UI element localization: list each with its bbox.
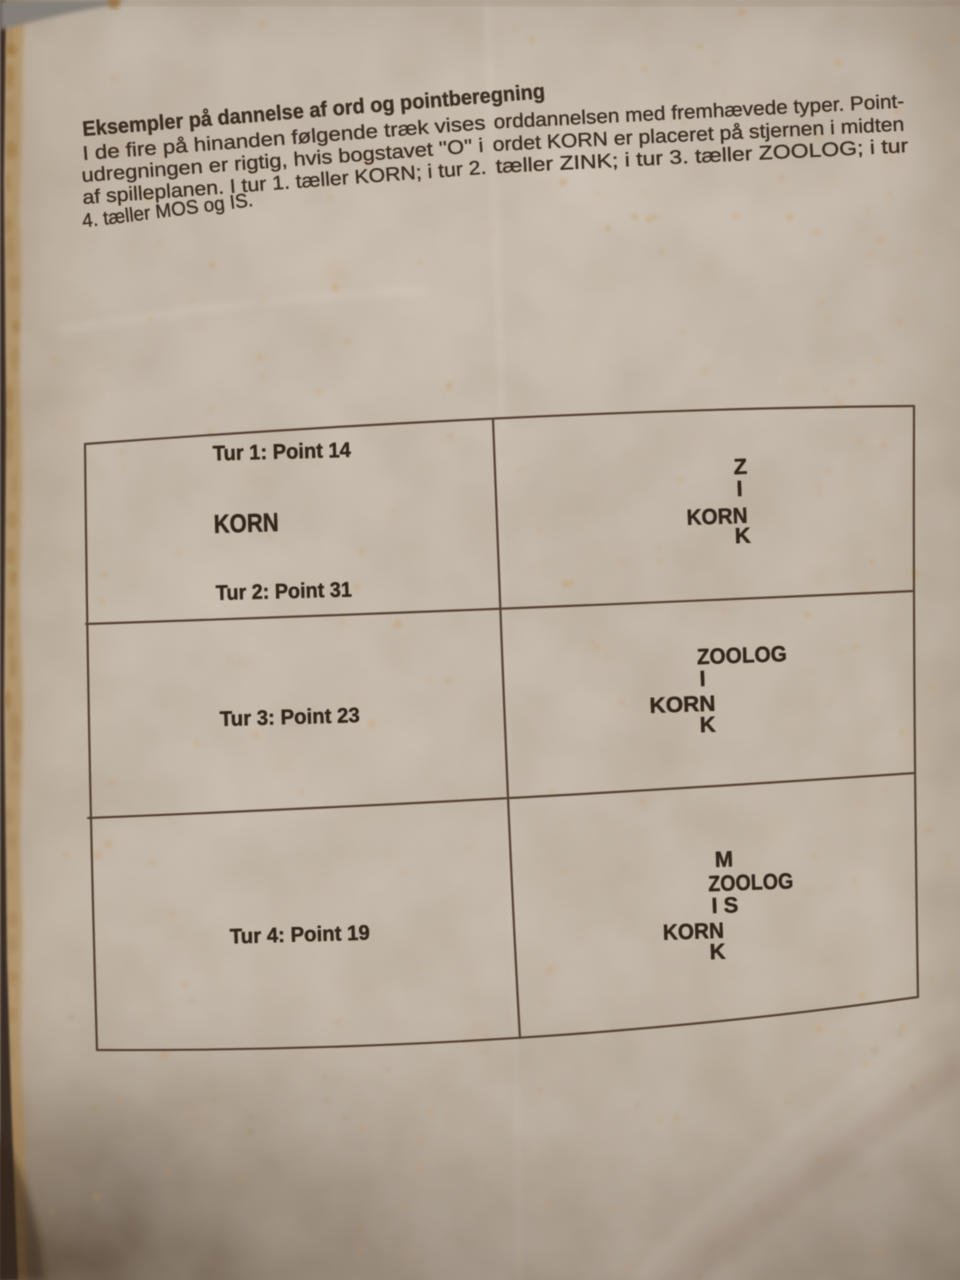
svg-text:Tur 4: Point 19: Tur 4: Point 19 xyxy=(229,922,370,949)
svg-text:K: K xyxy=(699,712,716,738)
svg-text:I: I xyxy=(736,476,743,501)
svg-text:M: M xyxy=(714,846,733,872)
svg-text:I: I xyxy=(699,666,706,691)
svg-text:K: K xyxy=(709,939,726,965)
svg-text:ZOOLOG: ZOOLOG xyxy=(696,641,787,669)
svg-text:Tur 3: Point 23: Tur 3: Point 23 xyxy=(219,704,360,731)
svg-text:ZOOLOG: ZOOLOG xyxy=(708,868,794,896)
svg-text:Tur 1: Point 14: Tur 1: Point 14 xyxy=(213,439,352,466)
svg-text:K: K xyxy=(734,523,751,549)
svg-text:I: I xyxy=(711,893,718,918)
svg-text:Tur 2: Point 31: Tur 2: Point 31 xyxy=(216,578,353,605)
svg-text:KORN: KORN xyxy=(213,507,279,539)
svg-text:S: S xyxy=(723,892,739,917)
